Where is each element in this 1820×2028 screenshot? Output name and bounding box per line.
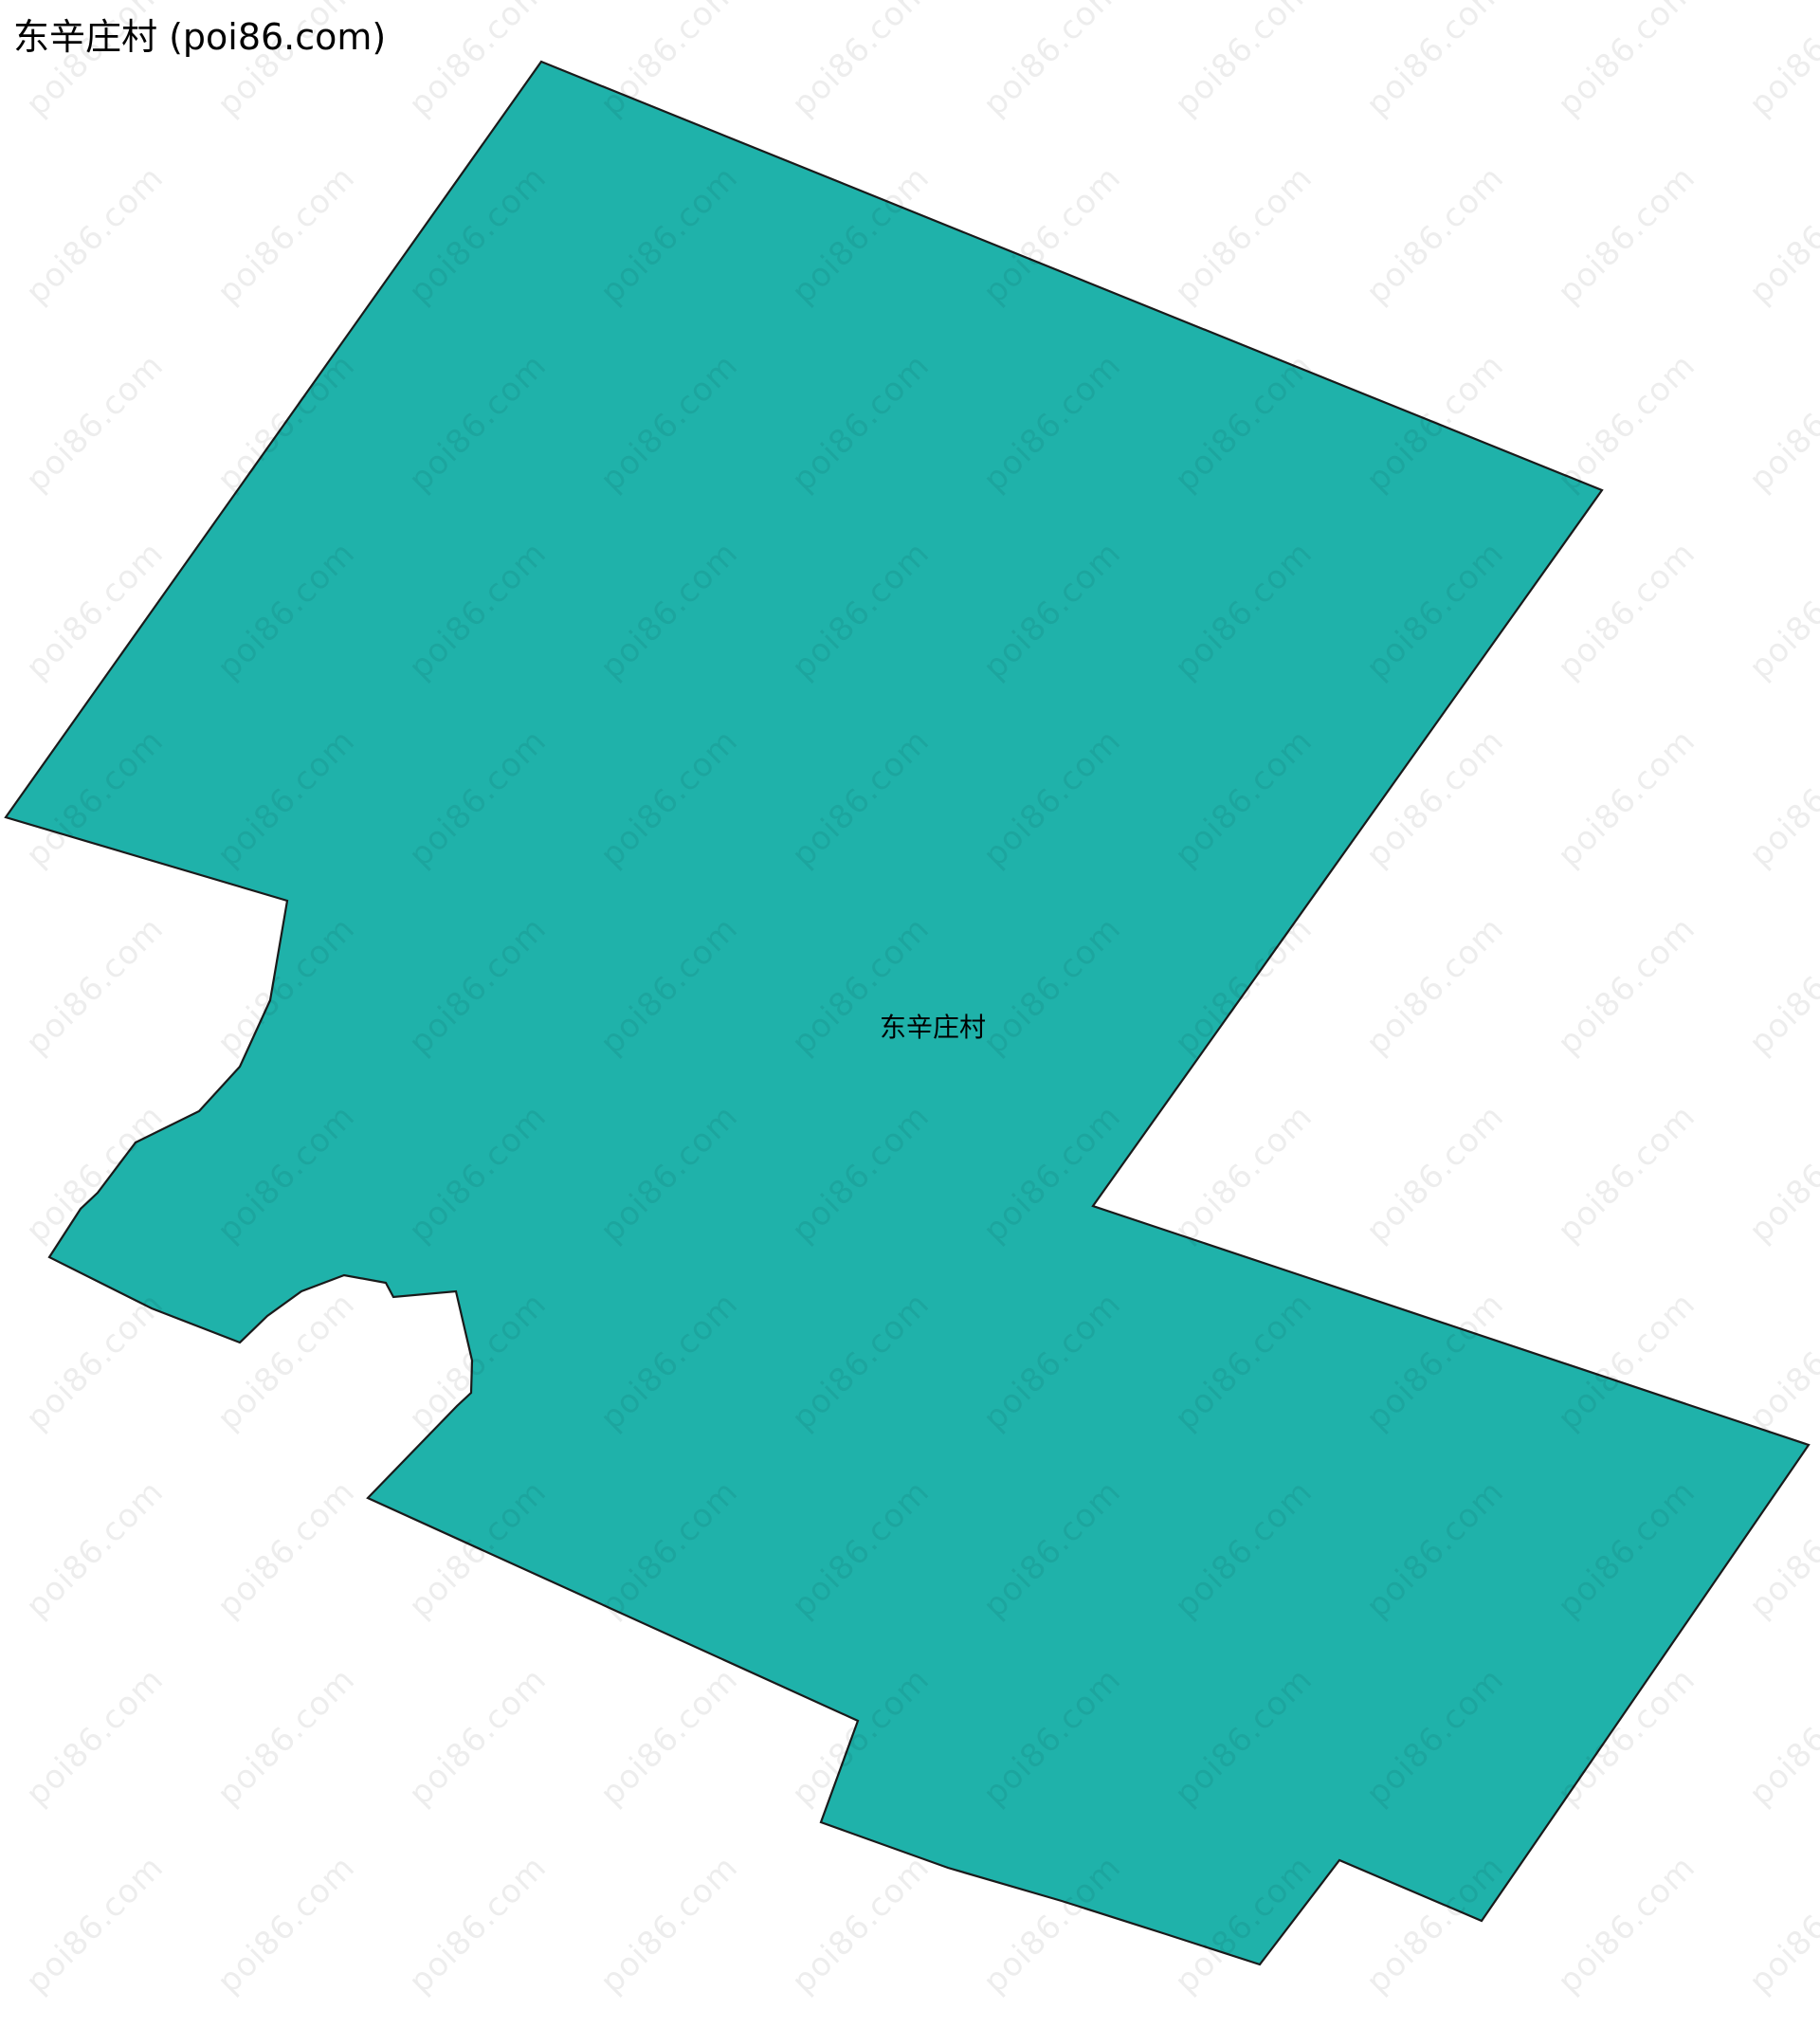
page-title: 东辛庄村 (poi86.com) [13,8,386,60]
map-canvas: poi86.compoi86.compoi86.compoi86.compoi8… [0,0,1820,2028]
village-label: 东辛庄村 [880,1007,986,1045]
